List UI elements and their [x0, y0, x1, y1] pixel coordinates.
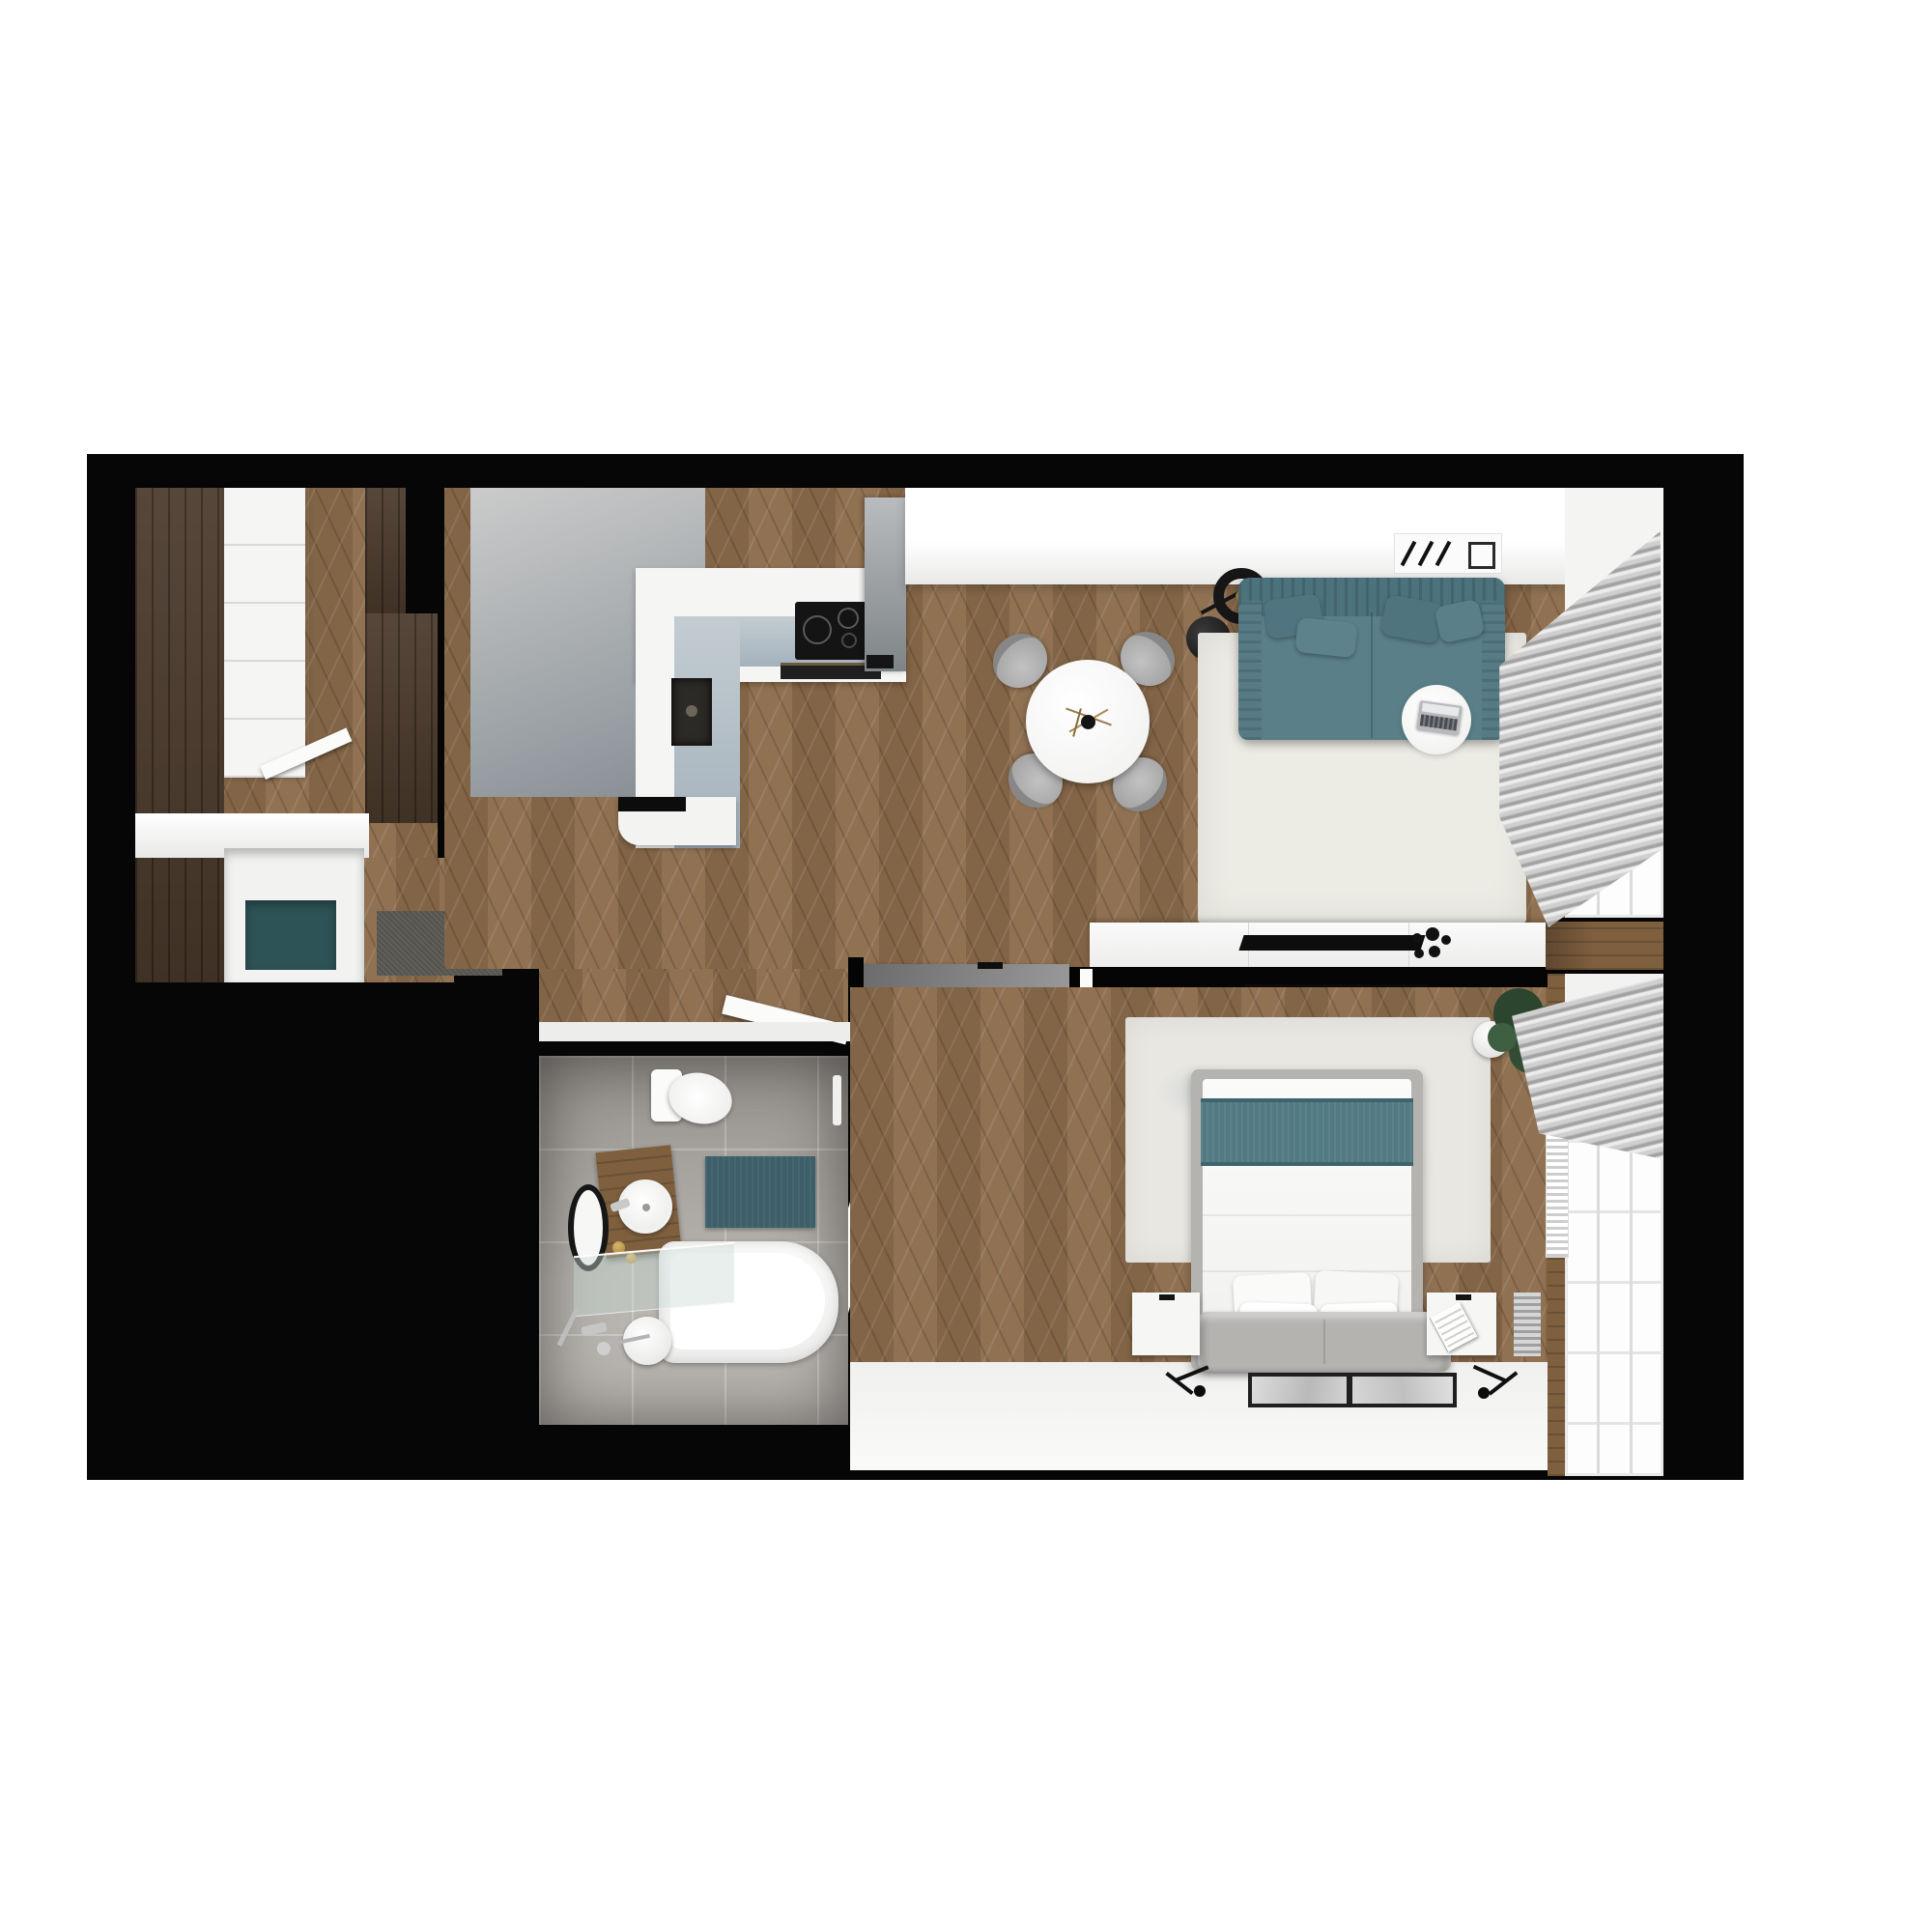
ac-vent: [1394, 533, 1502, 574]
ac-slat-icon: [1418, 541, 1435, 567]
holder-bar-icon: [611, 1334, 650, 1346]
wall-lamp-right: [1470, 1362, 1522, 1408]
wardrobe-right-upper: [365, 488, 406, 615]
kitchen-appliance-slot: [867, 655, 894, 668]
wardrobe-handle-icon: [978, 962, 1003, 969]
wardrobe-right-lower: [365, 613, 440, 823]
floor-picture-frame: [1349, 1373, 1457, 1407]
shower-head-icon: [597, 1342, 611, 1355]
bench-seam: [1323, 1320, 1325, 1364]
kitchen-counter-end-black: [618, 797, 686, 811]
floor-picture-frame: [1248, 1373, 1350, 1407]
sofa-pillow: [1380, 594, 1444, 644]
lamp-arm-icon: [1473, 1365, 1507, 1382]
tv-living: [1238, 935, 1425, 951]
flush-plate: [833, 1075, 841, 1125]
floor-plan-canvas: [0, 0, 1932, 1932]
nightstand-handle-icon: [1159, 1294, 1175, 1300]
sofa-pillow: [1294, 617, 1357, 658]
burner-small2-icon: [841, 633, 857, 648]
paper-holder: [623, 1317, 671, 1365]
lamp-arm-icon: [1176, 1365, 1209, 1381]
ac-slat-icon: [1401, 541, 1417, 567]
balcony-wood-band: [1546, 918, 1663, 974]
bed-teal-runner: [1201, 1098, 1413, 1166]
cooktop: [795, 602, 867, 660]
bed-duvet-seam: [1203, 1270, 1411, 1272]
kitchen-tall-unit: [865, 497, 906, 671]
shower-mixer-icon: [581, 1321, 608, 1336]
burner-small-icon: [838, 608, 859, 629]
kitchen-sink: [671, 678, 712, 746]
burner-large-icon: [803, 615, 832, 644]
plant-leaves-icon: [1488, 1023, 1517, 1052]
sofa-armrest-left: [1238, 601, 1262, 740]
laptop-keyboard-icon: [1420, 714, 1458, 730]
plan-wall-mask: [87, 454, 1744, 1480]
wardrobe-left: [135, 488, 224, 982]
sofa-pillow: [1435, 599, 1486, 644]
bathroom-north-wall: [539, 1022, 850, 1041]
open-book: [1430, 1302, 1478, 1352]
nightstand-handle-icon: [1456, 1294, 1471, 1300]
laptop: [1416, 700, 1463, 735]
bed-duvet-seam: [1203, 1214, 1411, 1216]
lamp-head-icon: [1194, 1385, 1206, 1397]
ac-grille-icon: [1468, 542, 1495, 569]
nightstand-right: [1427, 1293, 1496, 1355]
sink-drain-icon: [642, 1204, 650, 1211]
bedroom-window: [1565, 1140, 1663, 1476]
sofa-seat-seam: [1371, 612, 1373, 738]
bench-seat-teal: [245, 900, 336, 970]
nightstand-left: [1132, 1293, 1200, 1355]
bath-mat-teal: [705, 1156, 815, 1228]
table-vase: [1081, 715, 1095, 729]
wall-lamp-left: [1161, 1362, 1209, 1406]
lamp-head-icon: [1478, 1387, 1490, 1399]
ac-slat-icon: [1435, 541, 1452, 567]
decor-objects: [1412, 933, 1422, 943]
shower-rod-icon: [557, 1306, 581, 1347]
bedroom-radiator-small: [1514, 1293, 1541, 1356]
bedroom-radiator: [1546, 1121, 1569, 1258]
bathroom: [539, 1056, 848, 1425]
bed-foot-bench: [1198, 1312, 1451, 1372]
dining-table: [1026, 660, 1150, 783]
wardrobe-white: [224, 488, 305, 778]
sink-drain-icon: [686, 705, 697, 717]
